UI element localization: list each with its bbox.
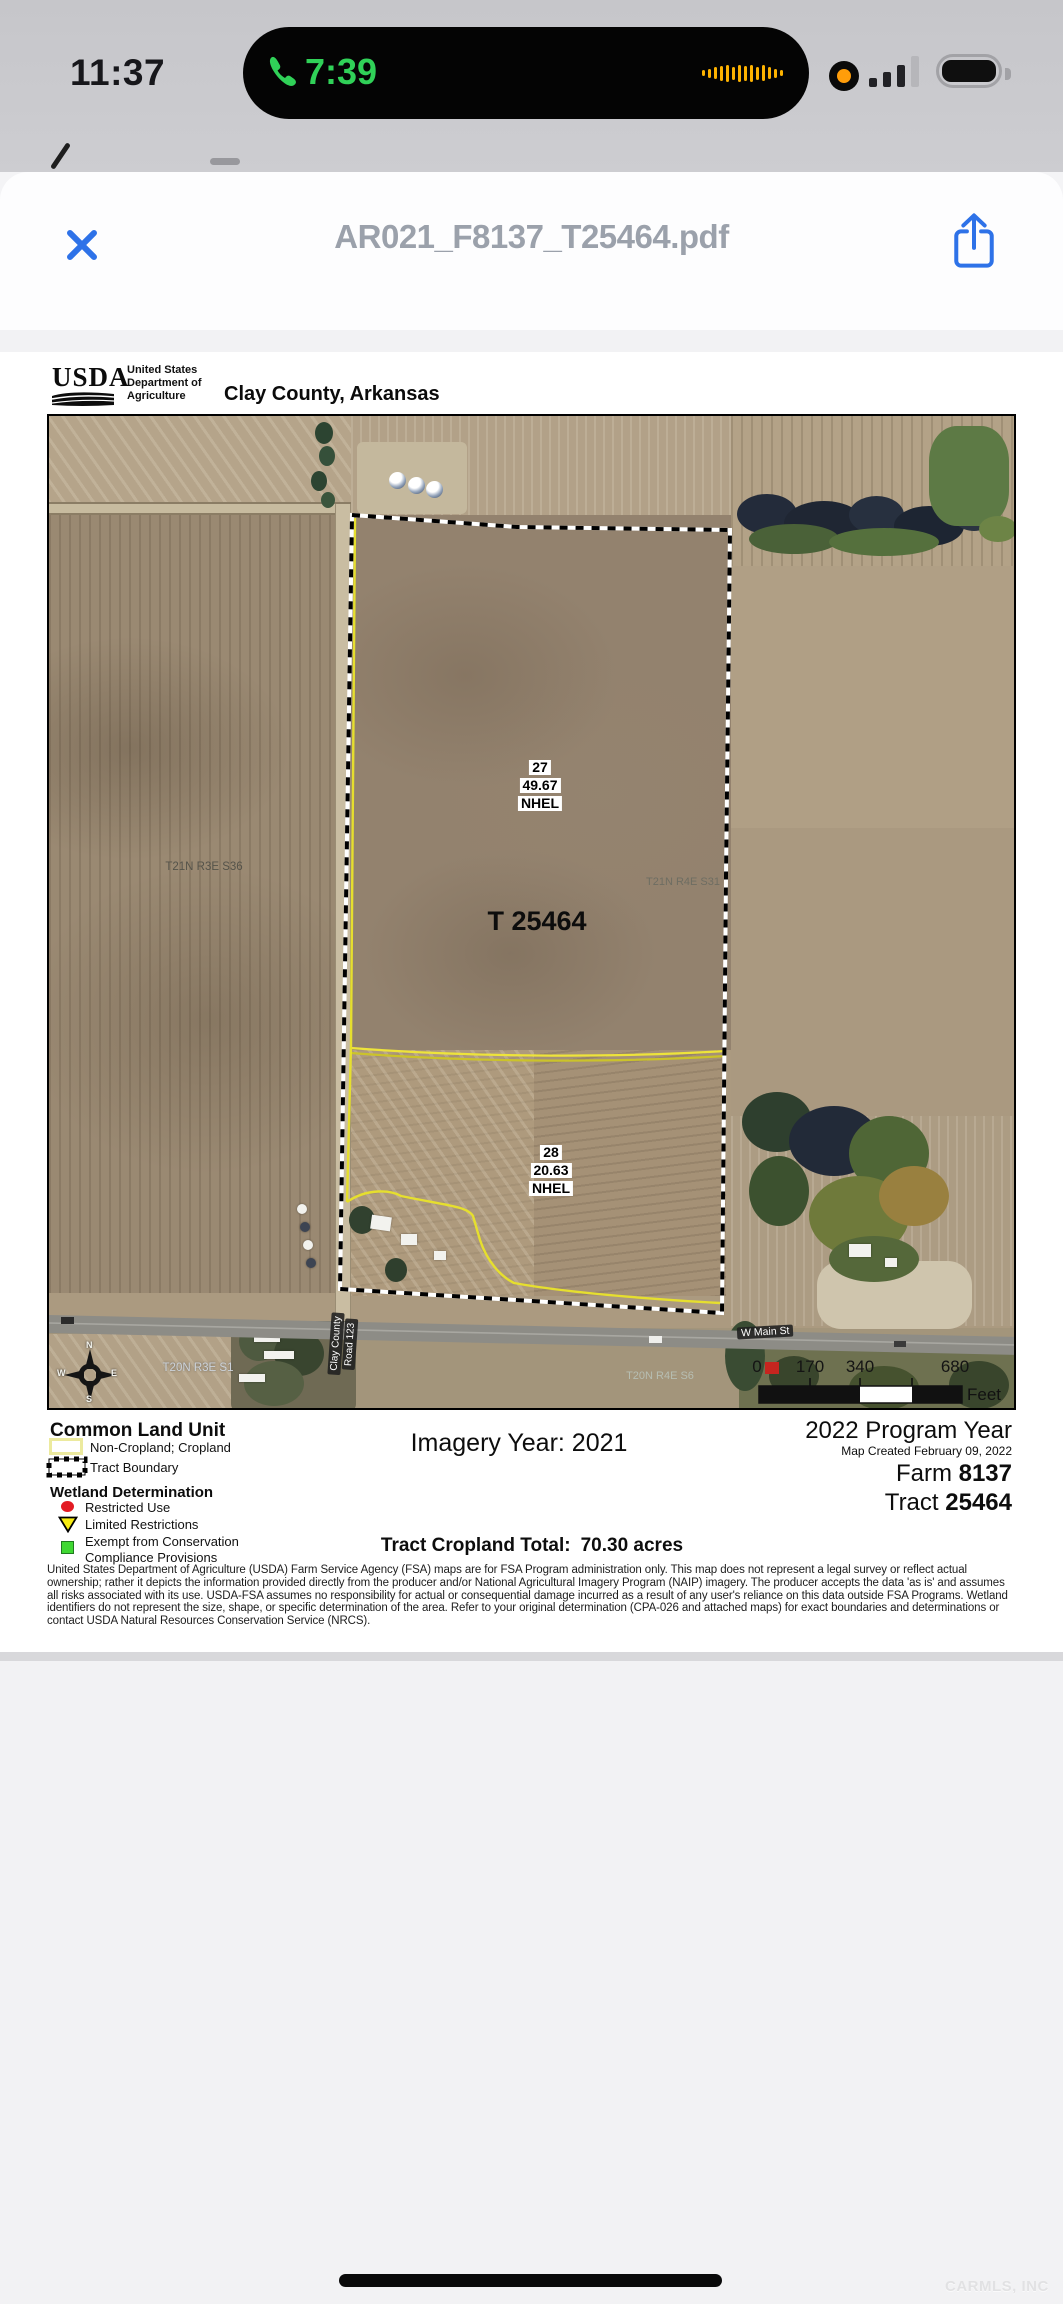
farm-number: Farm 8137 [896, 1460, 1012, 1488]
program-year: 2022 Program Year [805, 1417, 1012, 1445]
plss-label-sw: T20N R3E S1 [163, 1362, 234, 1374]
exempt-square-icon [61, 1541, 74, 1554]
tract-number-label: T 25464 [487, 906, 586, 937]
compass-n: N [86, 1340, 93, 1350]
plss-label-ne: T21N R4E S31 [646, 876, 720, 888]
compass-s: S [86, 1394, 92, 1404]
compass-e: E [111, 1368, 117, 1378]
audio-waveform-icon [702, 27, 783, 119]
pdf-preview-sheet: AR021_F8137_T25464.pdf USDA United State… [0, 172, 1063, 2304]
document-filename: AR021_F8137_T25464.pdf [0, 218, 1063, 256]
usda-logo: USDA [52, 362, 130, 393]
page-bottom-edge [0, 1652, 1063, 1661]
underlying-app-text [210, 158, 240, 165]
scale-unit-label: Feet [967, 1385, 1001, 1405]
cellular-signal-icon [869, 56, 921, 87]
legend-noncropland-label: Non-Cropland; Cropland [90, 1440, 231, 1455]
scale-bar [759, 1378, 962, 1403]
pdf-page: USDA United States Department of Agricul… [0, 352, 1063, 1652]
field-label-27: 27 49.67 NHEL [518, 760, 562, 811]
watermark-text: CARMLS, INC [945, 2278, 1049, 2295]
usda-swoosh-icon [52, 392, 114, 407]
scale-tick-340: 340 [846, 1357, 874, 1377]
limited-restrictions-triangle-icon [58, 1516, 78, 1533]
home-indicator[interactable] [339, 2274, 722, 2287]
tract-number: Tract 25464 [885, 1489, 1012, 1517]
iphone-screen: 11:37 7:39 [0, 0, 1063, 2304]
restricted-use-dot-icon [61, 1501, 74, 1512]
legend-tract-boundary-label: Tract Boundary [90, 1460, 178, 1475]
legend-wetland-heading: Wetland Determination [50, 1484, 213, 1501]
battery-icon [936, 54, 1002, 88]
dynamic-island-call-pill[interactable]: 7:39 [243, 27, 809, 119]
legend-limited-label: Limited Restrictions [85, 1517, 198, 1532]
field-label-28: 28 20.63 NHEL [529, 1145, 573, 1196]
status-bar: 11:37 7:39 [0, 0, 1063, 172]
share-icon [948, 212, 1000, 272]
call-duration: 7:39 [305, 51, 377, 93]
road-label-county-road: Clay County Road 123 [327, 1312, 358, 1376]
imagery-year: Imagery Year: 2021 [411, 1429, 628, 1458]
scale-tick-680: 680 [941, 1357, 969, 1377]
scale-tick-170: 170 [796, 1357, 824, 1377]
disclaimer-text: United States Department of Agriculture … [47, 1564, 1017, 1628]
page-title: Clay County, Arkansas [224, 383, 440, 406]
share-button[interactable] [944, 210, 1004, 276]
scale-tick-0: 0 [752, 1357, 761, 1377]
map-created-date: Map Created February 09, 2022 [841, 1444, 1012, 1458]
back-chevron-icon [50, 142, 71, 170]
plss-label-se: T20N R4E S6 [626, 1370, 694, 1382]
viewer-header: AR021_F8137_T25464.pdf [0, 172, 1063, 330]
agency-name: United States Department of Agriculture [127, 364, 202, 403]
plss-label-nw: T21N R3E S36 [165, 861, 242, 873]
compass-w: W [57, 1368, 66, 1378]
legend-restricted-label: Restricted Use [85, 1500, 170, 1515]
clock-time: 11:37 [70, 52, 165, 94]
legend-exempt-label: Exempt from Conservation Compliance Prov… [85, 1534, 239, 1566]
cropland-total: Tract Cropland Total:70.30 acres [381, 1535, 683, 1557]
tract-boundary-swatch-icon [46, 1456, 88, 1478]
noncropland-swatch-icon [49, 1438, 83, 1455]
microphone-in-use-icon [829, 61, 859, 91]
aerial-map: 27 49.67 NHEL 28 20.63 NHEL T 25464 T21N… [47, 414, 1016, 1410]
road-label-main-st: W Main St [737, 1321, 794, 1342]
phone-icon [263, 53, 301, 91]
